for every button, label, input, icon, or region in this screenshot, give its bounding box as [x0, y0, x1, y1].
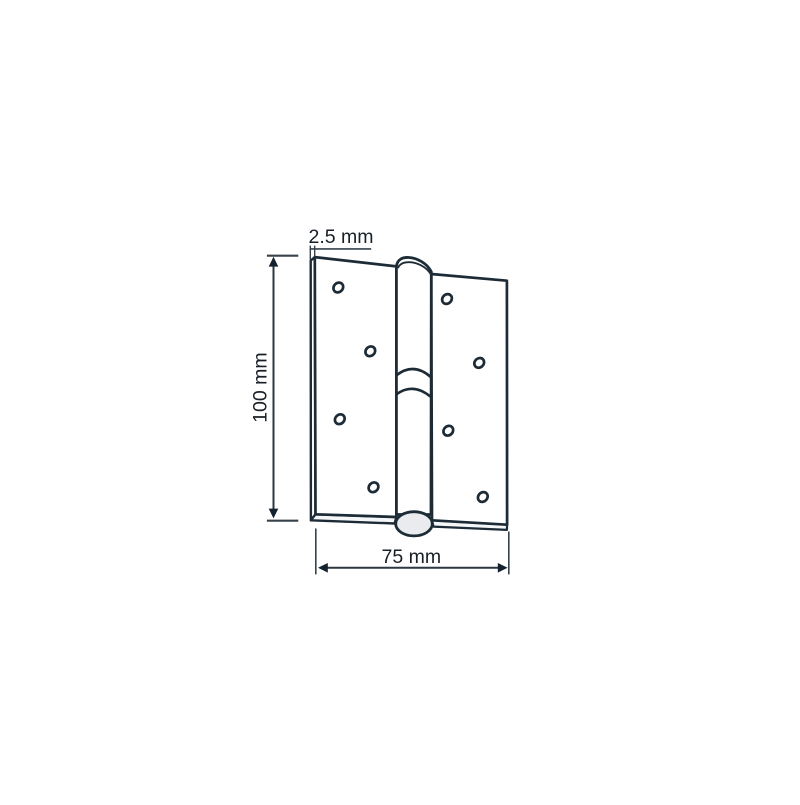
svg-text:2.5 mm: 2.5 mm — [309, 226, 374, 248]
svg-text:100 mm: 100 mm — [250, 352, 272, 422]
svg-text:75 mm: 75 mm — [382, 546, 442, 568]
